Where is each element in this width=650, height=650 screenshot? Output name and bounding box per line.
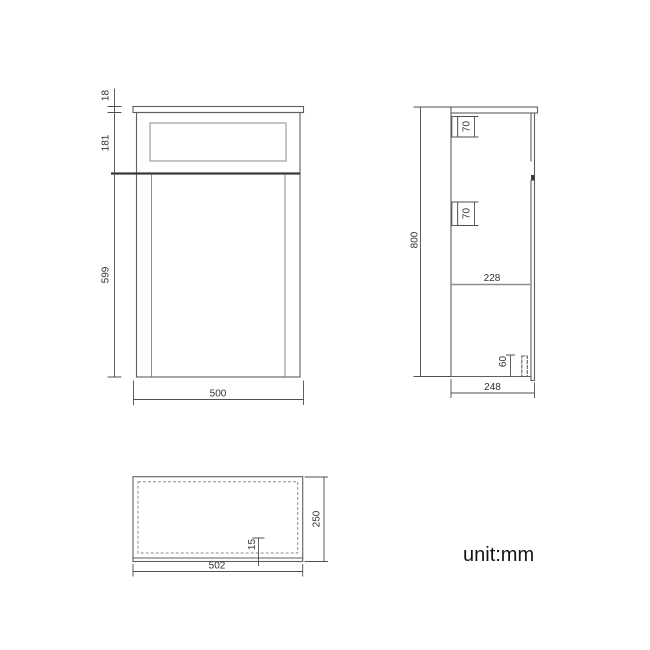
plan-hidden-inner-walls [138, 482, 298, 553]
side-dim-depth: 248 [484, 382, 501, 393]
front-dim-drawer-height: 181 [101, 134, 112, 151]
front-cabinet-body [137, 113, 301, 378]
front-width-dimension: 500 [134, 381, 304, 405]
side-front-panel [531, 113, 535, 381]
side-dim-interior-depth: 228 [484, 273, 501, 284]
side-upper-bracket-dimension: 70 [458, 117, 478, 138]
plan-dim-width: 502 [209, 561, 226, 572]
front-view: 18 181 599 500 [101, 89, 304, 405]
plan-width-dimension: 502 [133, 561, 303, 577]
front-dim-door-height: 599 [101, 266, 112, 283]
front-dim-counter-thickness: 18 [101, 90, 112, 102]
front-height-dim-lines [108, 89, 121, 377]
side-dim-height: 800 [410, 231, 421, 248]
side-lower-bracket-dimension: 70 [458, 202, 478, 226]
plan-depth-dimension: 250 [305, 477, 328, 562]
side-height-dimension: 800 [410, 107, 452, 377]
side-plinth-dimension: 60 [498, 355, 515, 377]
drawing-canvas: 18 181 599 500 70 70 800 228 [0, 0, 650, 650]
side-dim-upper-bracket: 70 [462, 121, 473, 133]
side-plinth-hidden [522, 356, 528, 377]
side-dim-lower-bracket: 70 [462, 208, 473, 220]
plan-dim-depth: 250 [312, 510, 323, 527]
side-countertop [451, 107, 538, 113]
side-wall-bracket-upper [452, 117, 458, 138]
plan-view: 15 502 250 [133, 477, 328, 576]
side-wall-bracket-lower [452, 202, 458, 226]
front-door-stiles [152, 175, 286, 377]
side-panel-gap-mark [531, 175, 535, 181]
side-view: 70 70 800 228 60 248 [410, 107, 538, 398]
side-carcass-outline [451, 113, 531, 377]
front-height-dimension: 18 181 599 [101, 89, 122, 377]
unit-label: unit:mm [463, 544, 534, 566]
front-dim-width: 500 [210, 389, 227, 400]
front-drawer-panel [150, 123, 286, 161]
plan-dim-front-rail: 15 [247, 539, 258, 551]
plan-outer-outline [133, 477, 303, 562]
side-dim-plinth: 60 [498, 356, 509, 368]
side-depth-dimension: 248 [451, 380, 535, 398]
technical-drawing: 18 181 599 500 70 70 800 228 [0, 0, 650, 650]
front-countertop [133, 107, 304, 113]
